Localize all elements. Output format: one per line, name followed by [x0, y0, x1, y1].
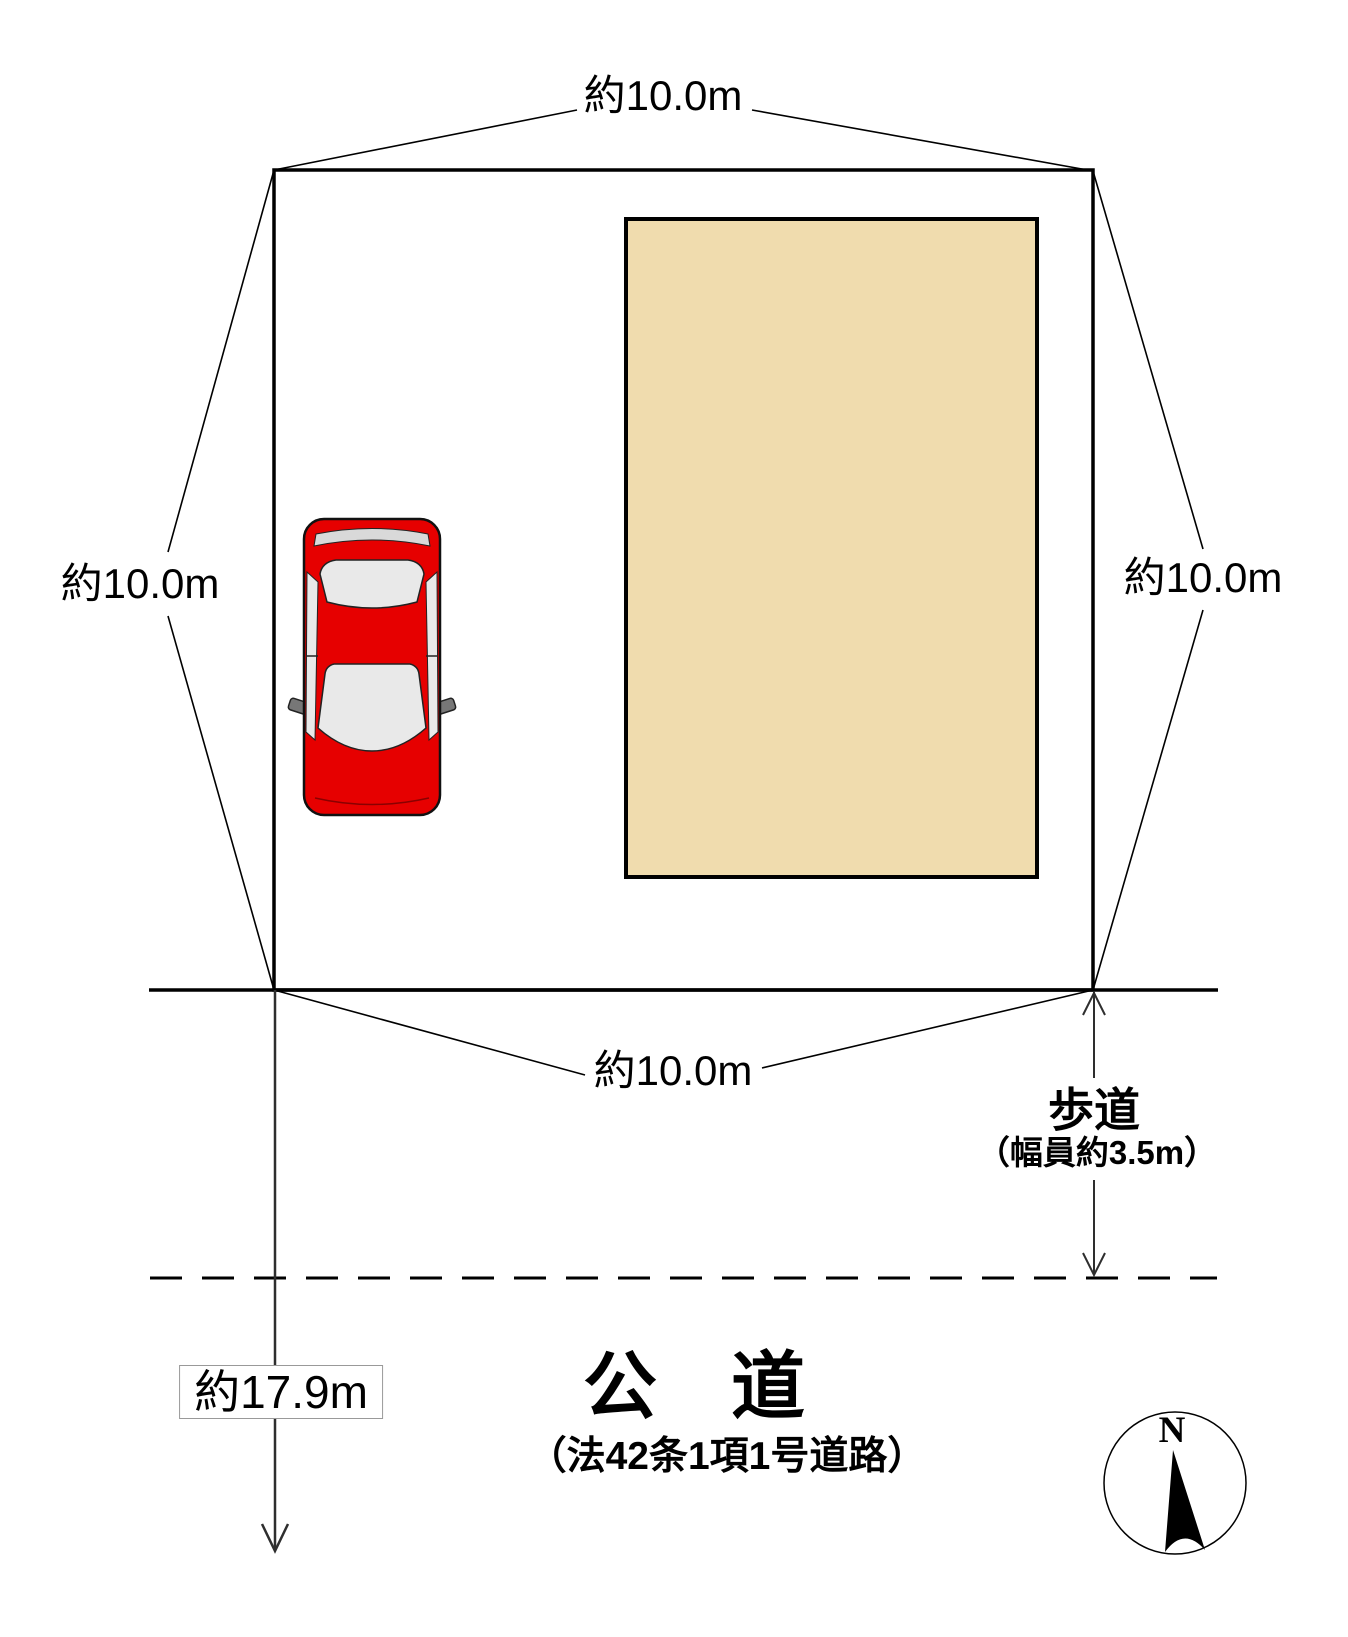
road-classification-label: （法42条1項1号道路） [528, 1437, 927, 1478]
dimension-line-top-right [752, 110, 1093, 171]
road-depth-label: 約17.9m [179, 1365, 383, 1419]
sidewalk-width-label: （幅員約3.5m） [977, 1136, 1217, 1171]
dimension-line-bottom-right [762, 990, 1093, 1068]
building-footprint [626, 219, 1037, 877]
sidewalk-label: 歩道 [1048, 1086, 1140, 1134]
dimension-line-right-lower [1093, 610, 1203, 990]
dimension-line-left-upper [168, 170, 274, 552]
dimension-line-left-lower [168, 616, 274, 990]
dimension-line-bottom-left [274, 990, 585, 1075]
road-depth-arrow [262, 990, 288, 1551]
dimension-label-left: 約10.0m [61, 562, 220, 606]
car-rear-window [320, 560, 424, 608]
dimension-label-right: 約10.0m [1124, 556, 1283, 600]
compass-north-label: N [1159, 1412, 1186, 1451]
road-name-label: 公 道 [583, 1348, 805, 1426]
dimension-line-top-left [274, 110, 577, 170]
dimension-label-bottom: 約10.0m [594, 1049, 753, 1093]
plot-site-diagram: 約10.0m 約10.0m 約10.0m 約10.0m 歩道 （幅員約3.5m）… [0, 0, 1348, 1637]
car-icon [288, 519, 457, 815]
dimension-label-top: 約10.0m [584, 74, 743, 118]
dimension-line-right-upper [1093, 171, 1203, 549]
car-windshield [318, 664, 426, 751]
